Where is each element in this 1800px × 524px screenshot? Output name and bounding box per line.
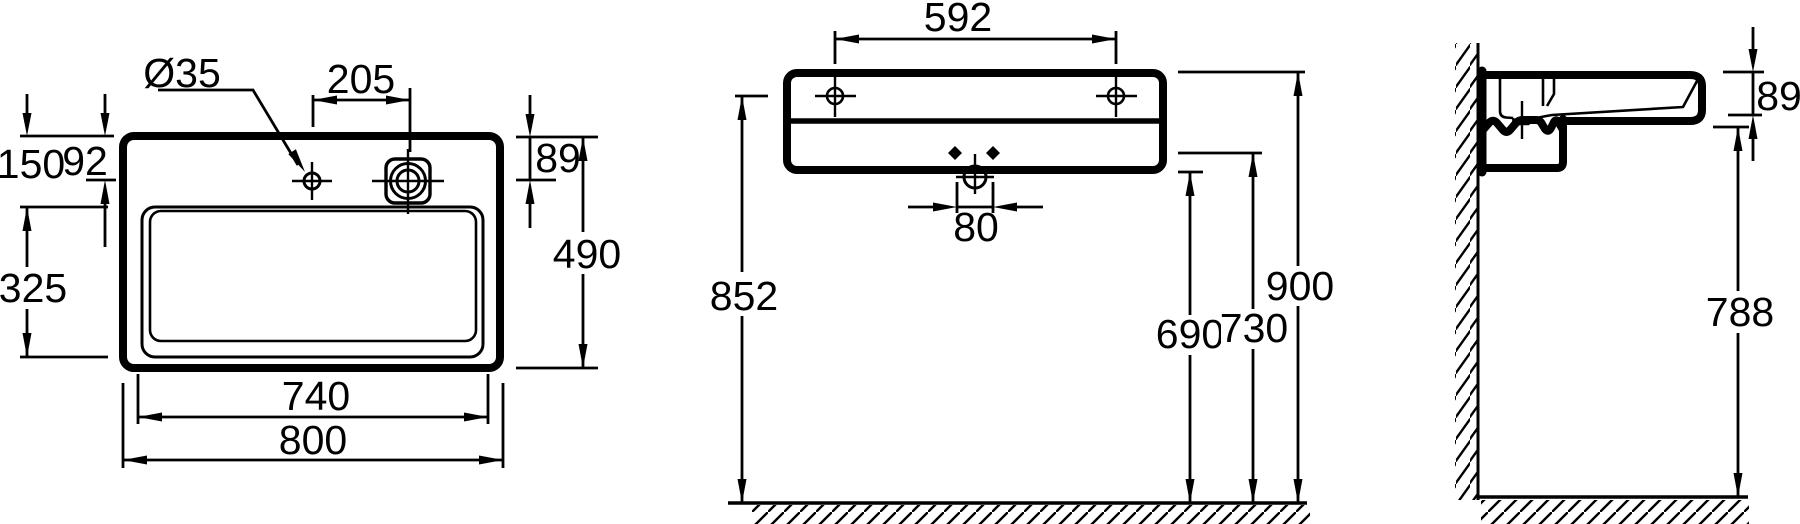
arrowhead [138,413,162,422]
dim-740: 740 [138,373,488,422]
dim-label-690: 690 [1156,311,1224,357]
arrowhead [526,114,535,137]
dim-label-730: 730 [1220,305,1288,351]
side-deck-slope [1539,81,1697,118]
front-fixing-hole-left [815,76,856,117]
plan-bowl-inner [150,211,476,341]
dim-label-325: 325 [0,265,67,311]
dim-label-592: 592 [924,0,992,40]
drain-fixing-diamond-left [948,146,962,160]
dim-325: 325 [0,207,67,357]
arrowhead [1186,479,1195,503]
dim-150: 150 [0,94,65,187]
dim-89-plan: 89 [526,95,581,228]
dim-label-150: 150 [0,141,65,187]
plan-bowl-rim [142,207,483,357]
side-basin-outline [1482,75,1702,121]
arrowhead [1092,35,1116,44]
arrowhead [738,479,747,503]
arrowhead [23,113,32,136]
dim-852: 852 [708,96,778,503]
dim-label-92: 92 [62,138,108,184]
arrowhead [464,413,488,422]
arrowhead [526,180,535,204]
front-fixing-hole-right [1096,76,1137,117]
front-view: 592 80 852 [708,0,1334,524]
arrowhead [1734,473,1743,497]
dim-label-852: 852 [710,273,778,319]
drain-fixing-diamond-right [986,146,1000,160]
arrowhead [1749,49,1758,72]
leader-line [158,90,298,165]
dim-788: 788 [1706,127,1774,497]
arrowhead [479,456,503,465]
dim-900: 900 [1266,72,1334,503]
arrowhead [101,113,110,136]
wall-hatching [1455,43,1478,500]
dim-label-80: 80 [953,204,999,250]
arrowhead [23,207,32,231]
arrowhead [1249,153,1258,177]
arrowhead [1734,127,1743,151]
dim-label-800: 800 [279,417,347,463]
arrowhead [835,35,859,44]
dim-tap-diameter: Ø35 [143,50,305,172]
dim-89-side: 89 [1749,27,1800,161]
dim-690: 690 [1156,172,1224,503]
side-floor-hatching [1481,500,1749,524]
dim-label-tap-diameter: Ø35 [143,50,221,96]
side-view: 89 788 [1455,27,1800,524]
arrowhead [23,333,32,357]
arrowhead [1294,479,1303,503]
arrowhead [738,96,747,120]
dim-label-89-side: 89 [1756,73,1800,119]
dim-label-900: 900 [1266,263,1334,309]
side-overflow-slot-right [1547,79,1554,106]
front-floor-hatching [752,505,1310,524]
arrowhead [123,456,147,465]
dim-label-89-plan: 89 [535,135,581,181]
dim-label-788: 788 [1706,289,1774,335]
side-bowl-back [1500,79,1513,118]
dim-730: 730 [1220,153,1288,503]
arrowhead [1249,479,1258,503]
washbasin-dimension-drawing: Ø35 205 150 92 [0,0,1800,524]
dim-800: 800 [123,417,503,465]
arrowhead [1294,72,1303,96]
dim-label-205: 205 [327,56,395,102]
arrowhead [1186,172,1195,196]
dim-label-490: 490 [553,231,621,277]
plan-drain-fitting [372,149,444,214]
dim-592: 592 [835,0,1116,64]
dim-92: 92 [62,94,109,247]
dim-label-740: 740 [282,373,350,419]
arrowhead [579,344,588,368]
plan-view: Ø35 205 150 92 [0,50,621,468]
plan-tap-hole [292,162,332,200]
drawing-canvas: Ø35 205 150 92 [0,0,1800,524]
leader-arrowhead [288,149,305,172]
